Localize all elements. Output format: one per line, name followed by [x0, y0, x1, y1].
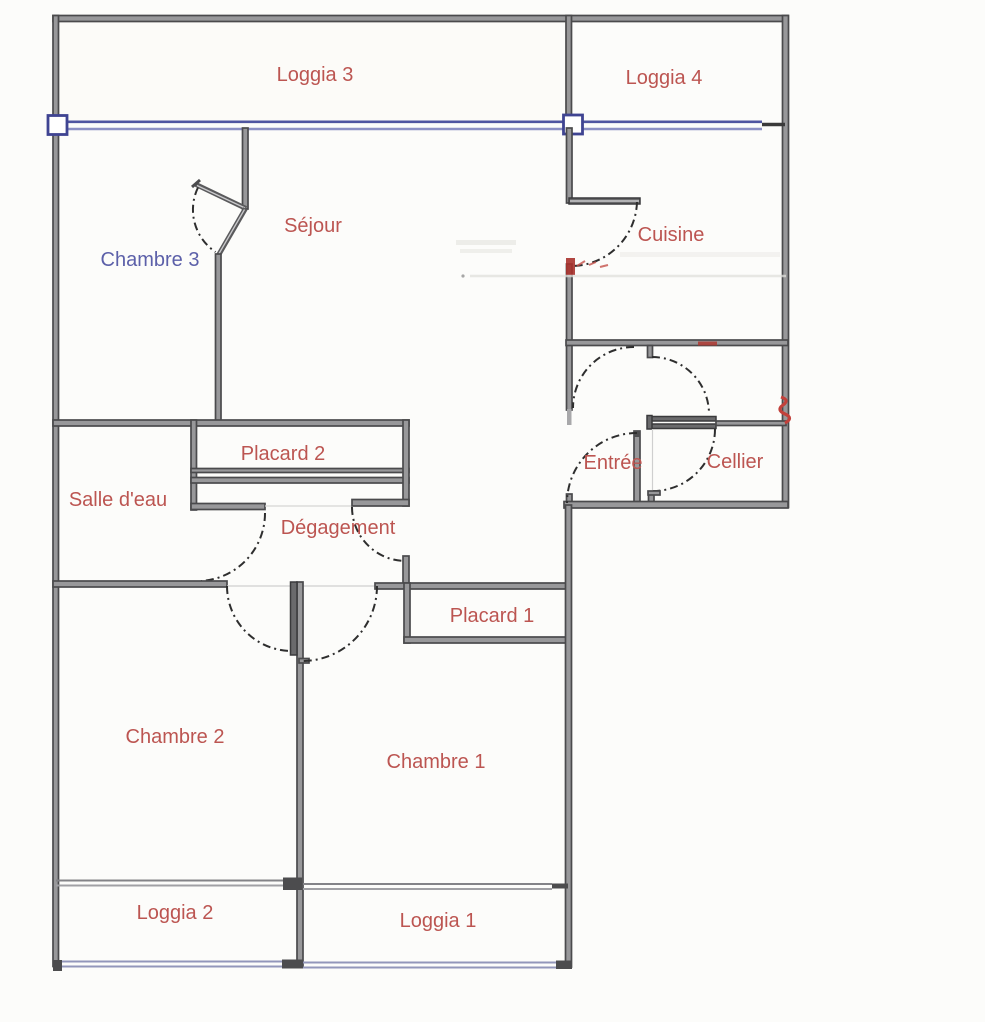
svg-text:Cuisine: Cuisine	[638, 224, 705, 246]
svg-text:Salle d'eau: Salle d'eau	[69, 489, 167, 511]
svg-text:Loggia 2: Loggia 2	[137, 902, 214, 924]
svg-text:Chambre 2: Chambre 2	[126, 726, 225, 748]
svg-text:Chambre 3: Chambre 3	[101, 249, 200, 271]
svg-text:Chambre 1: Chambre 1	[387, 751, 486, 773]
svg-text:Loggia 4: Loggia 4	[626, 67, 703, 89]
svg-text:Entrée: Entrée	[584, 452, 643, 474]
svg-text:Placard 1: Placard 1	[450, 605, 535, 627]
svg-text:Séjour: Séjour	[284, 215, 342, 237]
svg-text:Loggia 1: Loggia 1	[400, 910, 477, 932]
svg-text:Dégagement: Dégagement	[281, 517, 396, 539]
svg-text:Placard 2: Placard 2	[241, 443, 326, 465]
svg-text:Loggia 3: Loggia 3	[277, 64, 354, 86]
svg-text:Cellier: Cellier	[707, 451, 764, 473]
